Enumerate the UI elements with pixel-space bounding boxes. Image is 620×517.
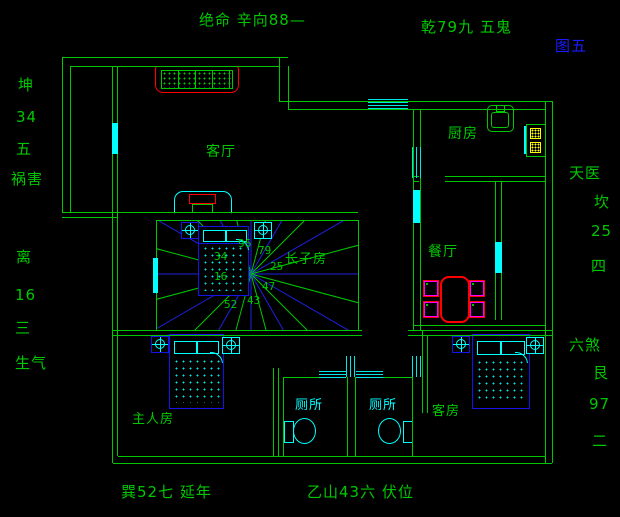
flower-planter bbox=[155, 66, 239, 93]
wall bbox=[283, 377, 319, 378]
room-label-guest: 客房 bbox=[432, 405, 460, 418]
annotation-left-lower-1: 16 bbox=[15, 288, 36, 303]
annotation-left-upper-1: 34 bbox=[16, 110, 37, 125]
door-window-bar bbox=[153, 258, 158, 293]
dining-chair bbox=[469, 280, 485, 297]
bedside-lamp-icon bbox=[151, 336, 169, 353]
dining-chair bbox=[469, 301, 485, 318]
wall bbox=[279, 101, 552, 102]
wall bbox=[422, 330, 423, 413]
pillow bbox=[477, 341, 501, 355]
wall bbox=[383, 377, 412, 378]
room-label-living: 客厅 bbox=[206, 145, 236, 159]
toilet-bowl bbox=[293, 418, 316, 444]
wall bbox=[355, 377, 356, 456]
annotation-right-upper-1: 坎 bbox=[594, 195, 610, 210]
wall bbox=[62, 57, 63, 213]
bed-guest bbox=[472, 334, 530, 409]
annotation-right-lower-2: 97 bbox=[589, 397, 610, 412]
annotation-right-upper-3: 四 bbox=[591, 259, 607, 274]
window-louver bbox=[368, 99, 408, 109]
radial-number-ne: 79 bbox=[258, 245, 271, 256]
door-window-bar bbox=[413, 190, 420, 223]
room-label-toilet-right: 厕所 bbox=[369, 399, 397, 412]
wall bbox=[279, 57, 280, 102]
wall bbox=[62, 57, 288, 58]
bedside-lamp-icon bbox=[526, 337, 544, 354]
dining-table bbox=[440, 276, 470, 323]
stove bbox=[526, 124, 546, 157]
wall bbox=[347, 377, 348, 456]
annotation-bottom-center: 乙山43六 伏位 bbox=[307, 485, 414, 500]
wall bbox=[408, 335, 552, 336]
bed-master bbox=[169, 334, 224, 409]
radial-number-e: 25 bbox=[270, 261, 283, 272]
window-hatch bbox=[412, 356, 422, 377]
sink-bowl bbox=[491, 112, 509, 128]
annotation-bottom-left: 巽52七 延年 bbox=[121, 485, 212, 500]
dining-chair bbox=[423, 301, 439, 318]
wall bbox=[156, 220, 359, 221]
wall bbox=[545, 101, 546, 463]
wall bbox=[113, 463, 552, 464]
radial-number-n: 96 bbox=[238, 238, 251, 249]
door-window-bar bbox=[495, 242, 502, 273]
bedside-lamp-icon bbox=[254, 222, 272, 239]
tv-screen bbox=[189, 194, 216, 204]
bedside-lamp-icon bbox=[181, 222, 199, 239]
burner-icon bbox=[530, 142, 541, 153]
tv-cabinet bbox=[174, 191, 232, 214]
door-window-bar bbox=[112, 123, 118, 154]
bedside-lamp-icon bbox=[452, 336, 470, 353]
wall bbox=[113, 330, 362, 331]
figure-label: 图五 bbox=[555, 39, 587, 54]
annotation-left-upper-0: 坤 bbox=[18, 78, 34, 93]
room-label-eldest-son: 长子房 bbox=[285, 253, 327, 266]
toilet-bowl bbox=[378, 418, 401, 444]
annotation-left-lower-2: 三 bbox=[15, 321, 31, 336]
annotation-right-lower-1: 艮 bbox=[593, 366, 609, 381]
wall bbox=[420, 109, 421, 330]
annotation-right-lower-3: 二 bbox=[592, 434, 608, 449]
wall bbox=[288, 109, 545, 110]
wall bbox=[445, 176, 545, 177]
wall bbox=[412, 377, 413, 456]
room-label-toilet-left: 厕所 bbox=[295, 399, 323, 412]
planter-plants bbox=[161, 70, 233, 89]
room-label-master: 主人房 bbox=[132, 413, 174, 426]
annotation-right-upper-0: 天医 bbox=[569, 166, 601, 181]
annotation-top: 绝命 辛向88— bbox=[199, 13, 306, 28]
wall bbox=[70, 66, 71, 212]
window-louver bbox=[356, 370, 383, 378]
window-louver bbox=[319, 370, 346, 378]
room-label-kitchen: 厨房 bbox=[448, 127, 478, 141]
wall bbox=[118, 456, 545, 457]
burner-icon bbox=[530, 128, 541, 139]
room-label-dining: 餐厅 bbox=[428, 245, 458, 259]
annotation-left-upper-3: 祸害 bbox=[11, 172, 43, 187]
floor-plan-canvas: 绝命 辛向88— 乾79九 五鬼 图五 坤 34 五 祸害 离 16 三 生气 … bbox=[0, 0, 620, 517]
wall bbox=[70, 66, 280, 67]
radial-number-s: 43 bbox=[247, 295, 260, 306]
annotation-right-upper-2: 25 bbox=[591, 224, 612, 239]
annotation-top-right: 乾79九 五鬼 bbox=[421, 20, 512, 35]
stove-edge bbox=[524, 126, 526, 154]
wall bbox=[62, 217, 117, 218]
pillow bbox=[203, 230, 226, 242]
wall bbox=[278, 368, 279, 456]
wall bbox=[408, 330, 552, 331]
wall bbox=[283, 377, 284, 456]
annotation-right-lower-0: 六煞 bbox=[569, 338, 601, 353]
bedside-lamp-icon bbox=[222, 337, 240, 354]
wall bbox=[358, 220, 359, 330]
wall bbox=[427, 335, 428, 413]
wall bbox=[273, 368, 274, 456]
wall bbox=[113, 335, 362, 336]
wall bbox=[552, 101, 553, 463]
annotation-left-upper-2: 五 bbox=[16, 142, 32, 157]
radial-number-wsw: 16 bbox=[214, 271, 227, 282]
wall bbox=[288, 66, 289, 109]
wall bbox=[62, 212, 358, 213]
pillow bbox=[174, 341, 197, 354]
radial-number-se: 47 bbox=[262, 281, 275, 292]
window-hatch bbox=[346, 356, 356, 377]
annotation-left-lower-3: 生气 bbox=[15, 356, 47, 371]
dining-chair bbox=[423, 280, 439, 297]
window-hatch bbox=[412, 147, 422, 178]
radial-number-w: 34 bbox=[214, 251, 227, 262]
annotation-left-lower-0: 离 bbox=[16, 250, 32, 265]
wall bbox=[413, 325, 545, 326]
radial-number-sw: 52 bbox=[224, 299, 237, 310]
